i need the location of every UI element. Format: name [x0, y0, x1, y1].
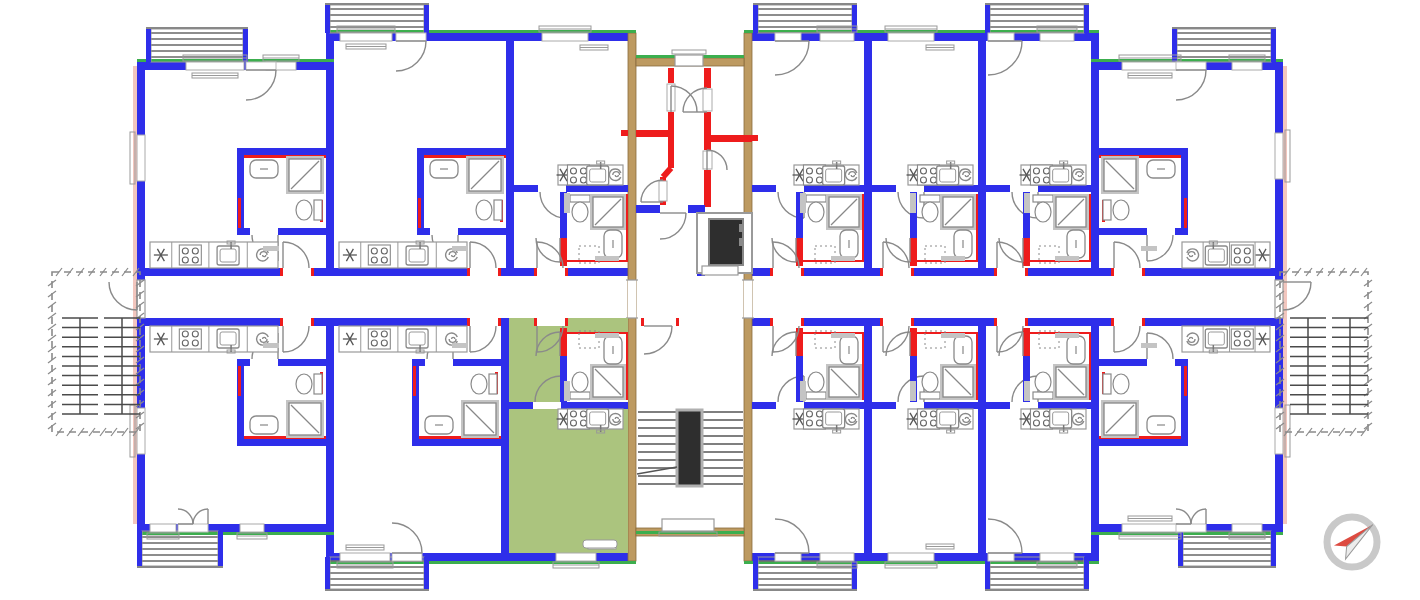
core-stairwell-elevator	[621, 50, 758, 536]
apartment-unit	[985, 3, 1091, 276]
compass-north-icon	[1327, 517, 1378, 567]
apartment-unit	[509, 318, 628, 568]
apartment-unit	[325, 3, 506, 276]
apartment-unit	[872, 26, 978, 276]
apartment-unit	[872, 318, 978, 568]
apartment-unit	[514, 26, 628, 276]
apartment-unit	[1099, 318, 1276, 568]
apartment-unit	[325, 318, 501, 591]
apartment-unit	[1099, 27, 1276, 276]
floor-plan	[0, 0, 1420, 600]
apartment-unit	[752, 318, 864, 591]
floor-plan-canvas	[0, 0, 1420, 600]
apartment-unit	[985, 318, 1091, 591]
apartment-unit	[752, 3, 864, 276]
